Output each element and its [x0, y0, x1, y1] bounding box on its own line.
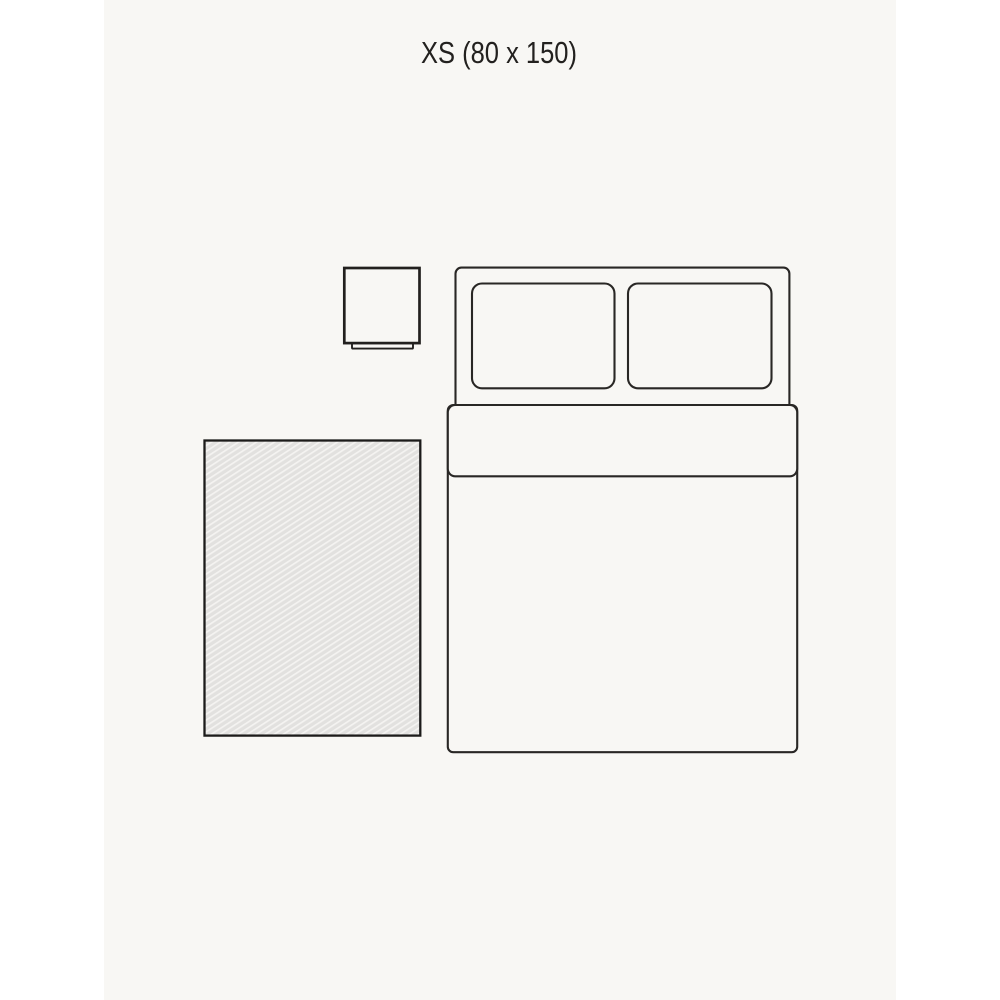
svg-text:XS (80 x 150): XS (80 x 150) [421, 35, 577, 70]
